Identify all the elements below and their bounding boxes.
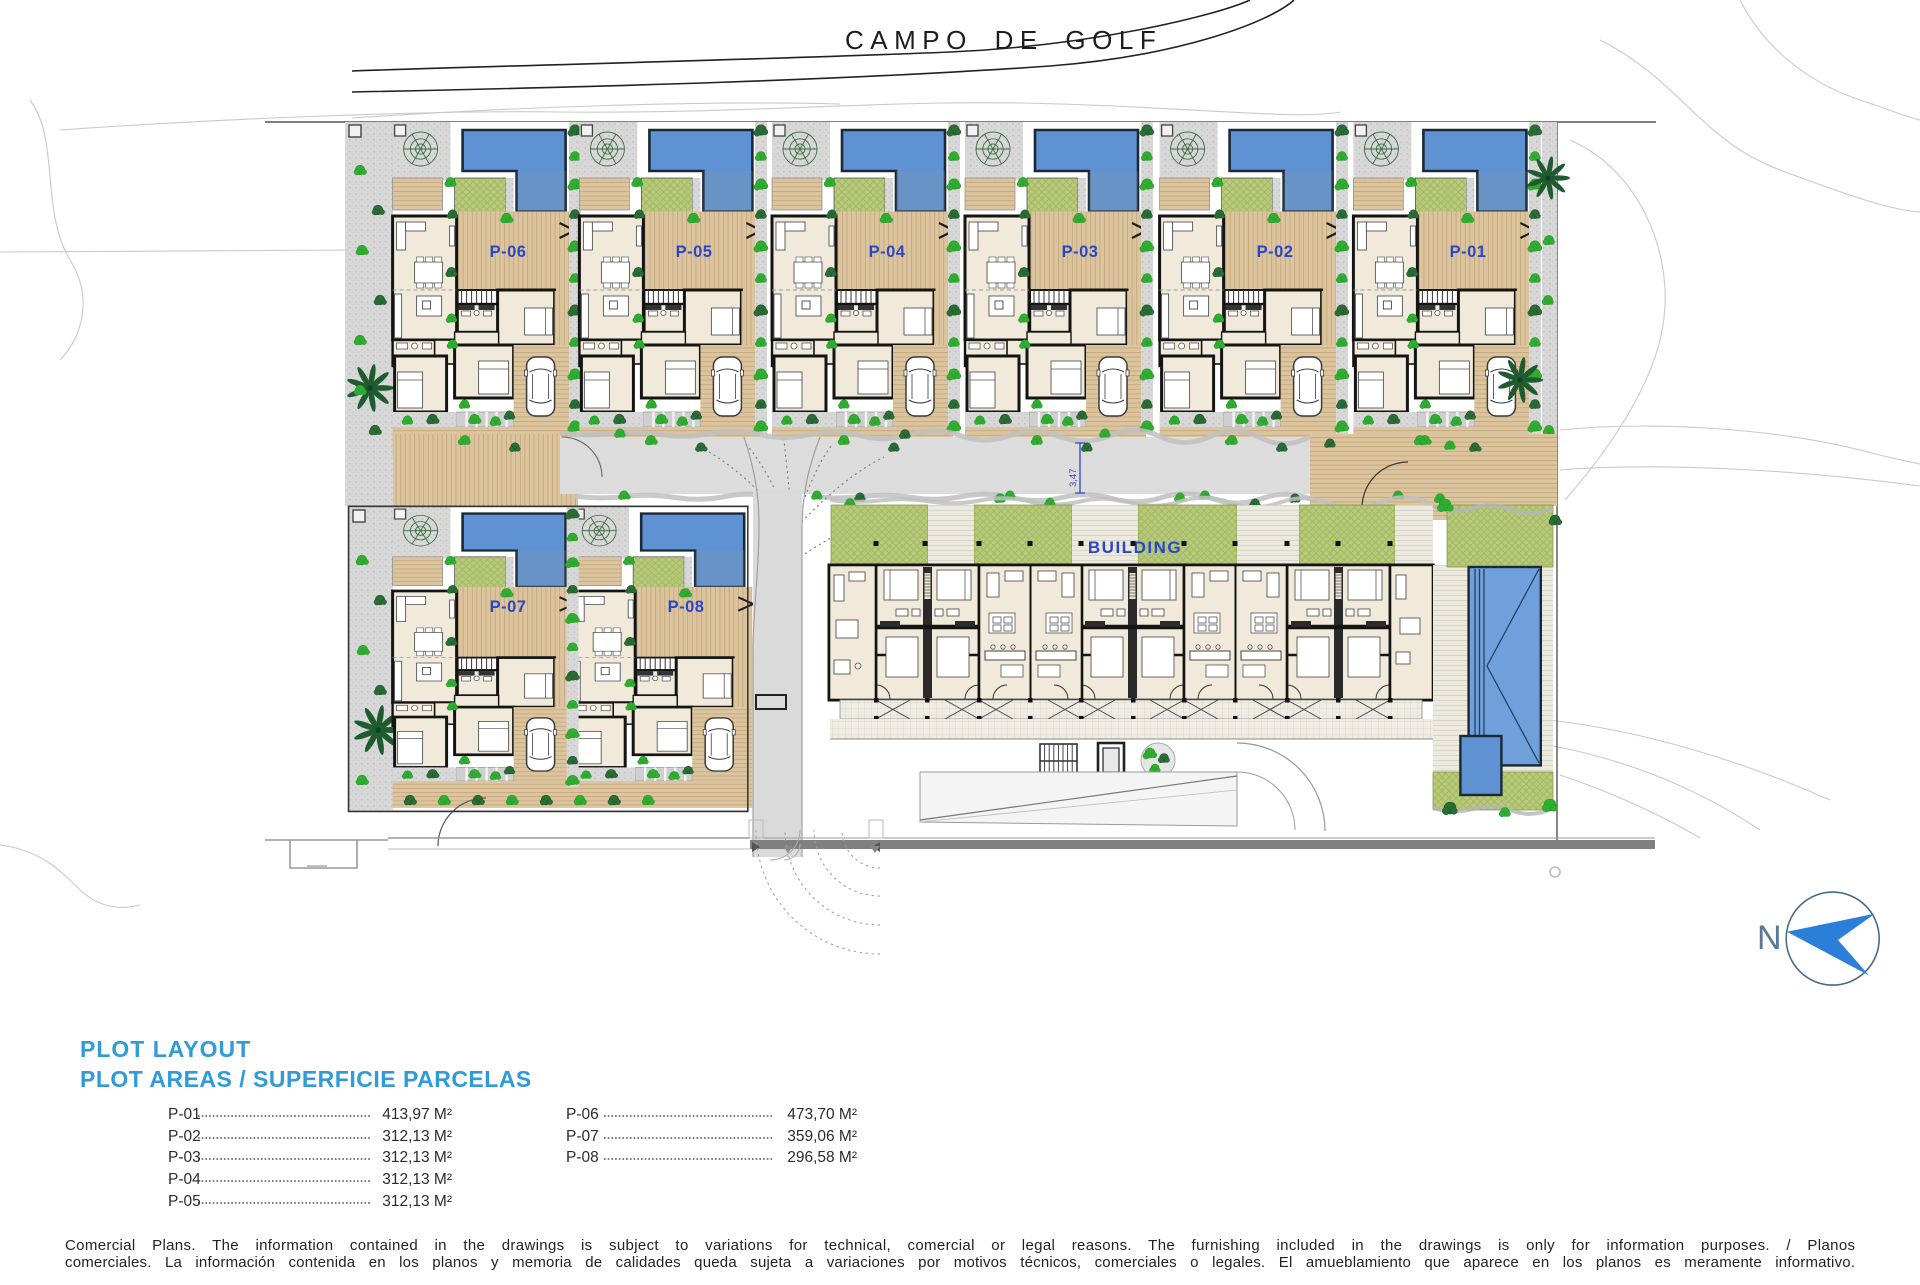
- svg-text:P-02: P-02: [168, 1128, 201, 1145]
- svg-text:P-06: P-06: [566, 1106, 599, 1123]
- svg-text:P-04: P-04: [869, 243, 906, 261]
- svg-text:296,58 M²: 296,58 M²: [787, 1149, 857, 1166]
- svg-text:3,47: 3,47: [1068, 469, 1079, 488]
- svg-text:P-06: P-06: [490, 243, 527, 261]
- svg-text:P-08: P-08: [566, 1149, 599, 1166]
- svg-text:473,70 M²: 473,70 M²: [787, 1106, 857, 1123]
- svg-text:359,06 M²: 359,06 M²: [787, 1128, 857, 1145]
- svg-text:Comercial Plans. The informati: Comercial Plans. The information contain…: [65, 1237, 1855, 1254]
- svg-text:CAMPO DE GOLF: CAMPO DE GOLF: [845, 25, 1162, 55]
- svg-text:P-03: P-03: [168, 1149, 201, 1166]
- svg-text:comerciales. La información co: comerciales. La información contenida en…: [65, 1254, 1855, 1271]
- svg-text:P-07: P-07: [566, 1128, 599, 1145]
- svg-text:PLOT AREAS / SUPERFICIE PARCEL: PLOT AREAS / SUPERFICIE PARCELAS: [80, 1066, 532, 1092]
- svg-text:P-02: P-02: [1257, 243, 1294, 261]
- svg-text:312,13 M²: 312,13 M²: [382, 1193, 452, 1210]
- svg-text:P-03: P-03: [1062, 243, 1099, 261]
- svg-text:312,13 M²: 312,13 M²: [382, 1149, 452, 1166]
- svg-text:P-08: P-08: [668, 598, 705, 616]
- svg-text:P-01: P-01: [1450, 243, 1487, 261]
- svg-text:312,13 M²: 312,13 M²: [382, 1171, 452, 1188]
- svg-text:P-04: P-04: [168, 1171, 201, 1188]
- svg-text:P-05: P-05: [168, 1193, 201, 1210]
- svg-text:PLOT LAYOUT: PLOT LAYOUT: [80, 1036, 251, 1062]
- svg-text:P-07: P-07: [490, 598, 527, 616]
- svg-text:N: N: [1757, 919, 1782, 957]
- svg-text:P-01: P-01: [168, 1106, 201, 1123]
- svg-text:312,13 M²: 312,13 M²: [382, 1128, 452, 1145]
- svg-text:413,97 M²: 413,97 M²: [382, 1106, 452, 1123]
- svg-text:P-05: P-05: [676, 243, 713, 261]
- svg-text:BUILDING: BUILDING: [1088, 538, 1182, 557]
